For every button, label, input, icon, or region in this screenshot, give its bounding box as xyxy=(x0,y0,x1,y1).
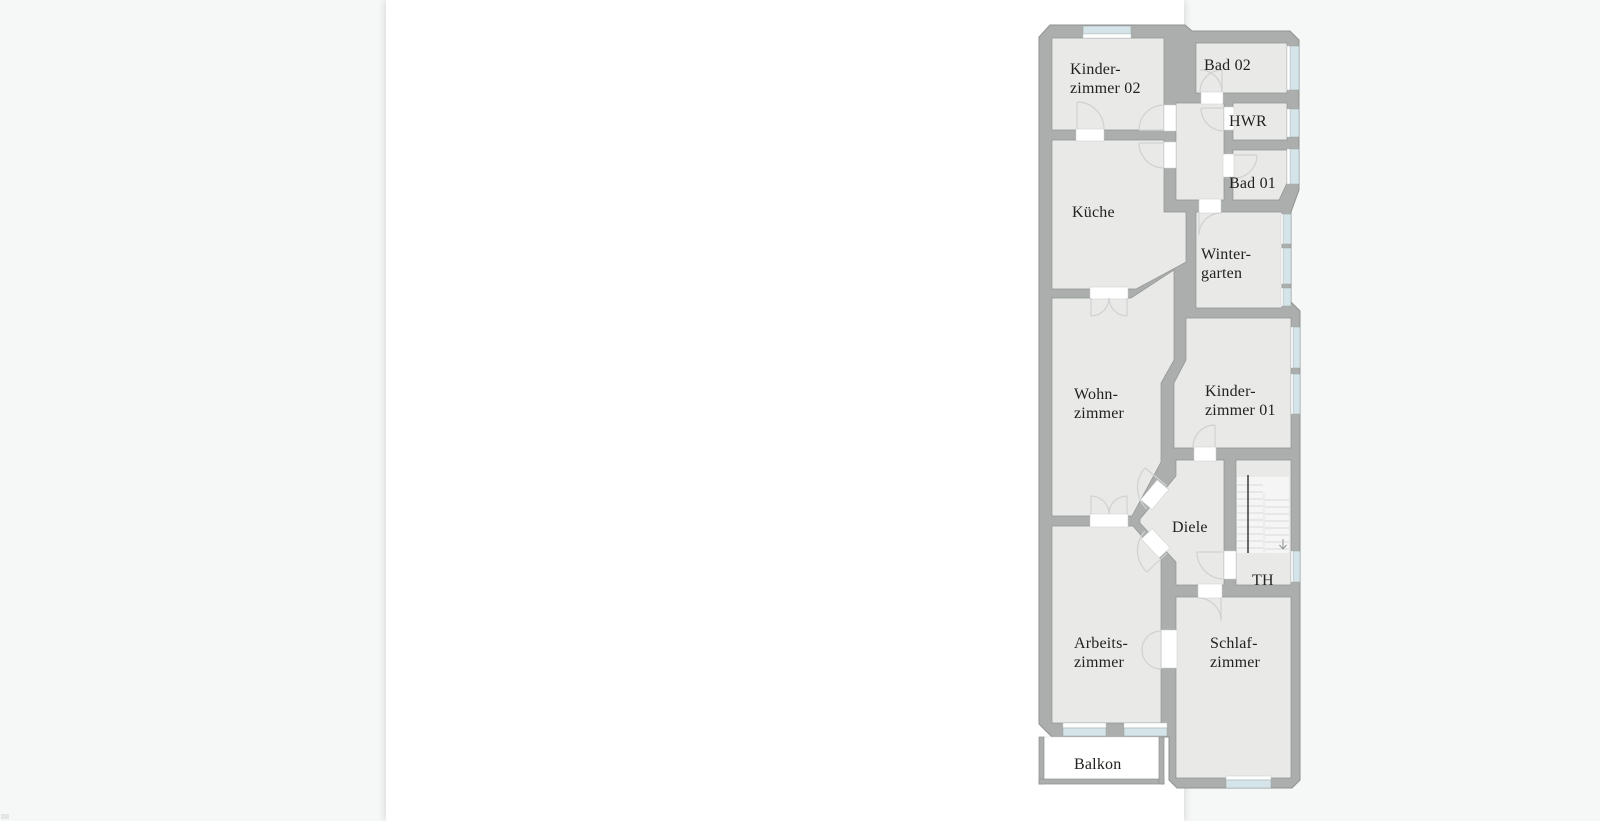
window-kinderzimmer02-top xyxy=(1083,26,1131,38)
room-label-arbeitszimmer-line2: zimmer xyxy=(1074,654,1125,671)
room-label-hwr: HWR xyxy=(1229,113,1267,130)
window-bad02-right xyxy=(1287,46,1299,90)
room-label-arbeitszimmer-line1: Arbeits- xyxy=(1074,635,1128,652)
room-label-kinderzimmer-02-line2: zimmer 02 xyxy=(1070,80,1141,97)
window-bad01-right xyxy=(1287,149,1299,184)
room-label-kinderzimmer-01-line2: zimmer 01 xyxy=(1205,402,1276,419)
room-label-balkon: Balkon xyxy=(1074,756,1121,773)
room-label-kinderzimmer-01-line1: Kinder- xyxy=(1205,383,1256,400)
room-label-wohnzimmer-line1: Wohn- xyxy=(1074,386,1118,403)
room-corridor-upper xyxy=(1176,103,1224,200)
balcony-wall-bottom xyxy=(1039,779,1164,784)
room-label-treppenhaus: TH xyxy=(1252,572,1274,589)
balcony-wall-right xyxy=(1159,737,1164,784)
room-schlafzimmer xyxy=(1176,597,1291,778)
room-label-bad-02: Bad 02 xyxy=(1204,57,1251,74)
room-arbeitszimmer xyxy=(1052,526,1161,723)
document-page: Kinder- zimmer 02 Bad 02 HWR Bad 01 Küch… xyxy=(386,0,1184,821)
window-wintergarten-right xyxy=(1281,214,1291,306)
room-label-diele: Diele xyxy=(1172,519,1208,536)
floor-plan: Kinder- zimmer 02 Bad 02 HWR Bad 01 Küch… xyxy=(1026,18,1316,790)
window-treppenhaus-right xyxy=(1291,551,1300,582)
room-label-kueche: Küche xyxy=(1072,204,1115,221)
corner-artifact xyxy=(1,814,9,819)
room-label-wohnzimmer-line2: zimmer xyxy=(1074,405,1125,422)
room-label-bad-01: Bad 01 xyxy=(1229,175,1276,192)
room-label-wintergarten-line2: garten xyxy=(1201,265,1242,282)
window-schlafzimmer-bottom xyxy=(1226,776,1271,788)
room-label-wintergarten-line1: Winter- xyxy=(1201,246,1251,263)
window-hwr-right xyxy=(1287,109,1299,137)
room-label-schlafzimmer-line1: Schlaf- xyxy=(1210,635,1258,652)
stairs-icon xyxy=(1237,475,1289,553)
room-label-kinderzimmer-02-line1: Kinder- xyxy=(1070,61,1121,78)
room-label-schlafzimmer-line2: zimmer xyxy=(1210,654,1261,671)
viewer-background: { "page": { "background": "#ffffff", "su… xyxy=(0,0,1600,821)
balcony-wall-left xyxy=(1039,737,1044,784)
